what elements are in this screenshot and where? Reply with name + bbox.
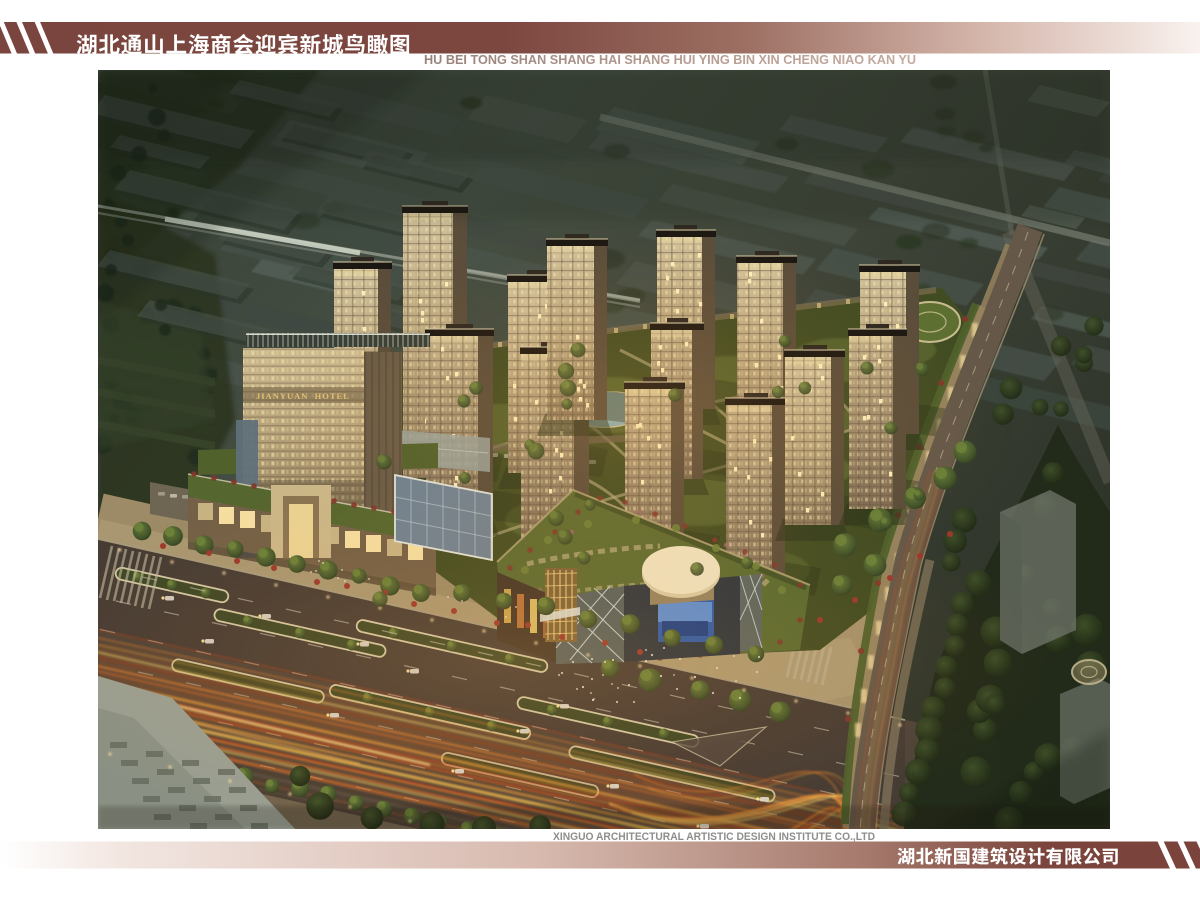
svg-text:XINGUO ARCHITECTURAL ARTISTIC: XINGUO ARCHITECTURAL ARTISTIC DESIGN INS… bbox=[553, 831, 875, 843]
svg-text:HU BEI TONG SHAN SHANG HAI SHA: HU BEI TONG SHAN SHANG HAI SHANG HUI YIN… bbox=[424, 52, 916, 67]
